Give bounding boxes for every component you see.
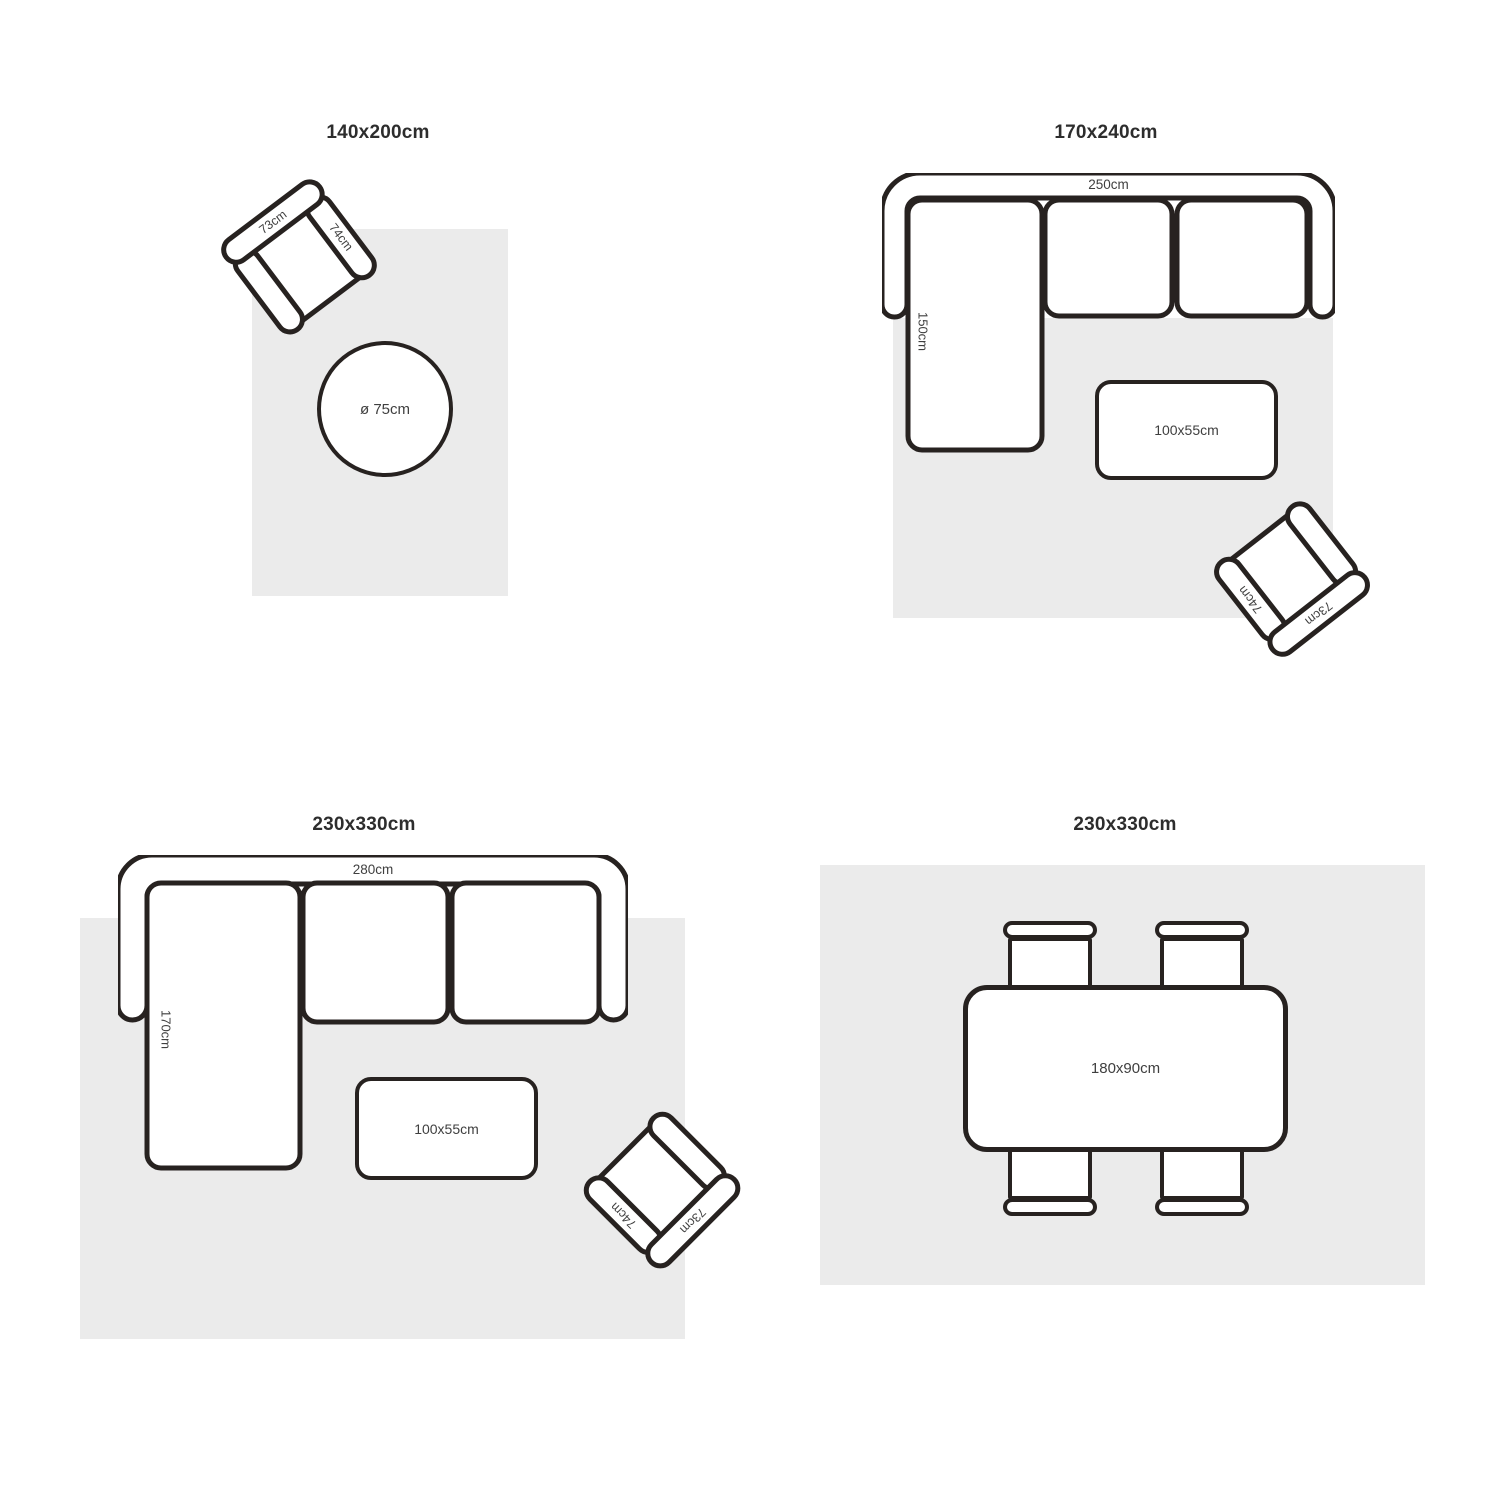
coffee-table-2: 100x55cm (1095, 380, 1278, 480)
armchair-back-label: 73cm (1302, 599, 1335, 629)
size-title-3: 230x330cm (214, 814, 514, 836)
size-title-4: 230x330cm (975, 814, 1275, 836)
rug-size-guide: 140x200cm 74cm 73cm ø 75cm 170x240cm 250… (0, 0, 1500, 1500)
chair-seat (1160, 937, 1244, 989)
coffee-table-label-3: 100x55cm (414, 1121, 479, 1137)
coffee-table-3: 100x55cm (355, 1077, 538, 1180)
round-table-label: ø 75cm (360, 401, 410, 418)
round-side-table: ø 75cm (317, 341, 453, 477)
sofa-middle-cushion (303, 883, 448, 1022)
dining-chair-top-left (1003, 921, 1098, 991)
armchair-arm-label: 74cm (326, 221, 356, 254)
sofa-width-label-2: 250cm (882, 177, 1335, 192)
armchair-arm-label: 74cm (1236, 583, 1266, 616)
sofa-chaise-label-3: 170cm (159, 1000, 174, 1060)
armchair-back-label: 73cm (677, 1205, 709, 1237)
chair-backrest (1003, 1198, 1097, 1216)
dining-chair-top-right (1155, 921, 1250, 991)
sofa-right-cushion (452, 883, 599, 1022)
size-title-2: 170x240cm (956, 122, 1256, 144)
size-title-1: 140x200cm (228, 122, 528, 144)
chair-seat (1008, 937, 1092, 989)
dining-table: 180x90cm (963, 985, 1288, 1152)
chair-seat (1160, 1148, 1244, 1200)
sofa-right-cushion (1177, 200, 1307, 316)
armchair-arm-label: 74cm (608, 1199, 640, 1231)
dining-chair-bottom-right (1155, 1148, 1250, 1218)
coffee-table-label-2: 100x55cm (1154, 422, 1219, 438)
sofa-chaise-label-2: 150cm (916, 302, 931, 362)
dining-chair-bottom-left (1003, 1148, 1098, 1218)
sofa-width-label-3: 280cm (118, 862, 628, 877)
sofa-middle-cushion (1045, 200, 1172, 316)
dining-table-label: 180x90cm (1091, 1060, 1160, 1077)
chair-backrest (1155, 1198, 1249, 1216)
chair-seat (1008, 1148, 1092, 1200)
